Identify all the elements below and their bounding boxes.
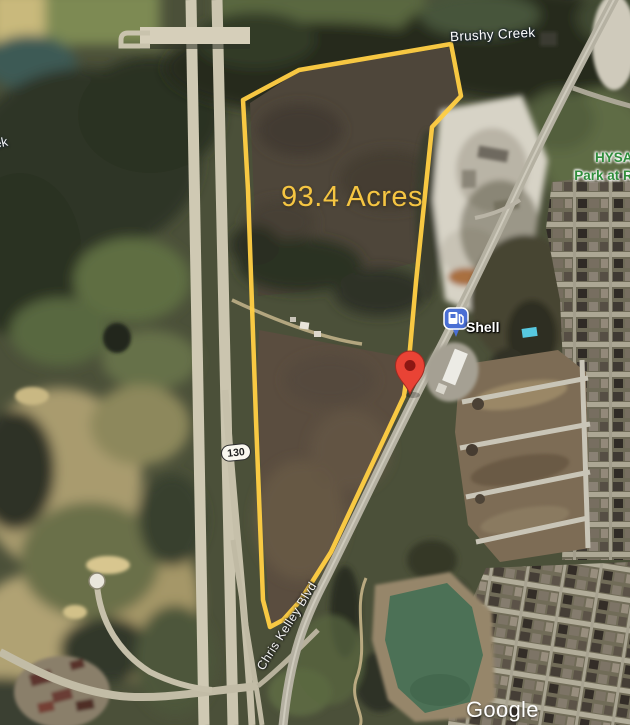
satellite-map-canvas[interactable]: Brushy Creek ek 93.4 Acres HYSA T Park a… [0, 0, 630, 725]
satellite-imagery [0, 0, 630, 725]
